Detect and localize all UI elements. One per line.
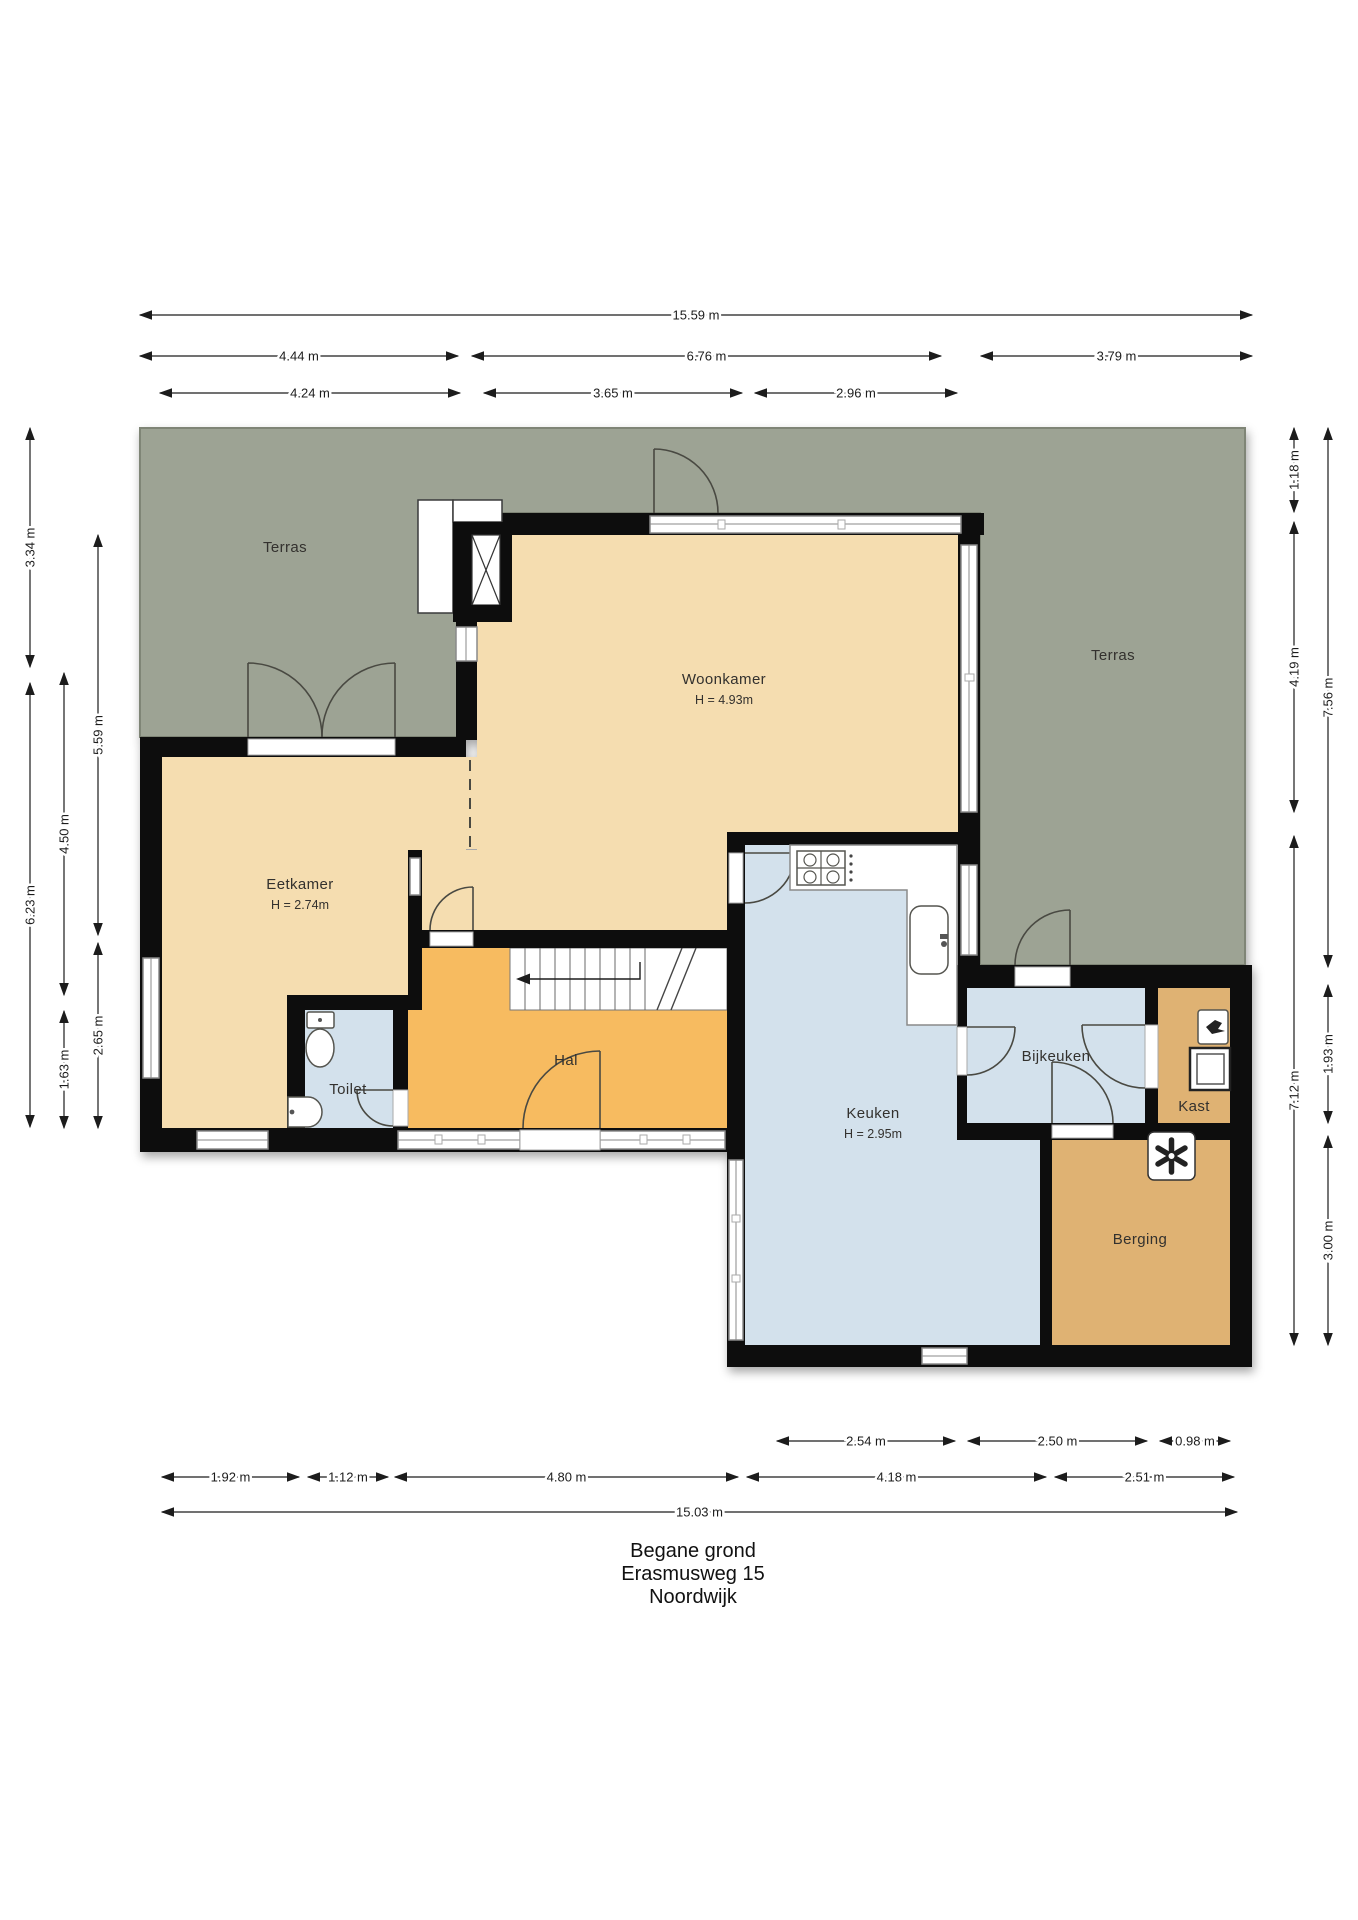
svg-text:0.98 m: 0.98 m [1175, 1434, 1215, 1449]
wc-icon [306, 1012, 334, 1067]
dim-3.34m: 3.34 m [23, 428, 38, 667]
room-label-berging: Berging [1113, 1231, 1168, 1248]
boiler-tap-icon [1198, 1010, 1228, 1044]
dim-2.51m: 2.51 m [1055, 1470, 1234, 1485]
svg-text:15.59 m: 15.59 m [673, 308, 720, 323]
svg-text:2.54 m: 2.54 m [846, 1434, 886, 1449]
svg-text:3.79 m: 3.79 m [1097, 349, 1137, 364]
dim-2.54m: 2.54 m [777, 1434, 955, 1449]
window-keuken-west [729, 1160, 743, 1340]
sink-icon [910, 906, 948, 974]
dim-3.00m: 3.00 m [1321, 1136, 1336, 1345]
window-keuken-south [922, 1348, 967, 1364]
dim-6.23m: 6.23 m [23, 683, 38, 1127]
window-eetkamer-hal-wall [410, 858, 420, 895]
dim-1.92m: 1.92 m [162, 1470, 299, 1485]
room-label-bijkeuken: Bijkeuken [1022, 1048, 1091, 1065]
title-line-street: Erasmusweg 15 [621, 1563, 764, 1586]
dim-15.03m: 15.03 m [162, 1505, 1237, 1520]
svg-text:7.12 m: 7.12 m [1287, 1071, 1302, 1111]
dim-1.18m: 1.18 m [1287, 428, 1302, 512]
stove-icon [797, 851, 853, 885]
dim-3.65m: 3.65 m [484, 386, 742, 401]
dim-2.50m: 2.50 m [968, 1434, 1147, 1449]
svg-text:4.80 m: 4.80 m [547, 1470, 587, 1485]
dim-7.56m: 7.56 m [1321, 428, 1336, 967]
svg-text:4.19 m: 4.19 m [1287, 647, 1302, 687]
svg-text:4.50 m: 4.50 m [57, 814, 72, 854]
dim-5.59m: 5.59 m [91, 535, 106, 935]
svg-text:3.00 m: 3.00 m [1321, 1221, 1336, 1261]
dim-6.76m: 6.76 m [472, 349, 941, 364]
dim-0.98m: 0.98 m [1160, 1434, 1230, 1449]
floorplan-drawing: 15.59 m4.44 m6.76 m3.79 m4.24 m3.65 m2.9… [0, 0, 1358, 1920]
svg-text:1.63 m: 1.63 m [57, 1050, 72, 1090]
svg-text:1.92 m: 1.92 m [211, 1470, 251, 1485]
room-label-terras-left: Terras [263, 539, 307, 556]
dim-4.24m: 4.24 m [160, 386, 460, 401]
window-eetkamer-south [197, 1131, 268, 1149]
title-line-city: Noordwijk [621, 1586, 764, 1609]
dim-4.44m: 4.44 m [140, 349, 458, 364]
window-woonkamer-east-1 [961, 545, 977, 812]
svg-text:7.56 m: 7.56 m [1321, 678, 1336, 718]
washer-icon [1190, 1048, 1230, 1090]
svg-text:4.44 m: 4.44 m [279, 349, 319, 364]
room-sublabel-eetkamer: H = 2.74m [271, 898, 329, 912]
washbasin-icon [288, 1097, 322, 1127]
svg-text:2.50 m: 2.50 m [1038, 1434, 1078, 1449]
dim-2.65m: 2.65 m [91, 943, 106, 1128]
dim-1.12m: 1.12 m [308, 1470, 388, 1485]
dim-3.79m: 3.79 m [981, 349, 1252, 364]
window-hal-south-2 [600, 1131, 725, 1149]
dim-1.63m: 1.63 m [57, 1011, 72, 1128]
svg-text:1.93 m: 1.93 m [1321, 1034, 1336, 1074]
room-label-terras-right: Terras [1091, 647, 1135, 664]
svg-text:1.18 m: 1.18 m [1287, 450, 1302, 490]
dim-4.80m: 4.80 m [395, 1470, 738, 1485]
svg-text:4.24 m: 4.24 m [290, 386, 330, 401]
window-woonkamer-north [650, 516, 961, 533]
svg-text:1.12 m: 1.12 m [328, 1470, 368, 1485]
svg-text:15.03 m: 15.03 m [676, 1505, 723, 1520]
room-label-toilet: Toilet [329, 1081, 367, 1098]
svg-text:2.65 m: 2.65 m [91, 1016, 106, 1056]
dim-4.19m: 4.19 m [1287, 522, 1302, 812]
room-sublabel-keuken: H = 2.95m [844, 1127, 902, 1141]
window-hal-south [398, 1131, 520, 1149]
svg-text:6.23 m: 6.23 m [23, 885, 38, 925]
room-label-woonkamer: Woonkamer [682, 671, 766, 688]
svg-text:2.96 m: 2.96 m [836, 386, 876, 401]
dim-2.96m: 2.96 m [755, 386, 957, 401]
floorplan-page: 15.59 m4.44 m6.76 m3.79 m4.24 m3.65 m2.9… [0, 0, 1358, 1920]
title-line-floor: Begane grond [621, 1540, 764, 1563]
dim-4.50m: 4.50 m [57, 673, 72, 995]
room-label-eetkamer: Eetkamer [266, 876, 333, 893]
room-label-hal: Hal [554, 1052, 578, 1069]
svg-text:3.34 m: 3.34 m [23, 528, 38, 568]
dim-7.12m: 7.12 m [1287, 836, 1302, 1345]
svg-text:5.59 m: 5.59 m [91, 715, 106, 755]
svg-text:6.76 m: 6.76 m [687, 349, 727, 364]
dim-4.18m: 4.18 m [747, 1470, 1046, 1485]
stairs [510, 948, 727, 1010]
room-label-keuken: Keuken [846, 1105, 899, 1122]
dim-15.59m: 15.59 m [140, 308, 1252, 323]
svg-text:2.51 m: 2.51 m [1125, 1470, 1165, 1485]
room-sublabel-woonkamer: H = 4.93m [695, 693, 753, 707]
plan-title: Begane grond Erasmusweg 15 Noordwijk [621, 1540, 764, 1609]
window-keuken-east [961, 865, 977, 955]
svg-text:4.18 m: 4.18 m [877, 1470, 917, 1485]
ventilation-fan-icon [1148, 1132, 1195, 1180]
svg-text:3.65 m: 3.65 m [593, 386, 633, 401]
dim-1.93m: 1.93 m [1321, 985, 1336, 1123]
room-label-kast: Kast [1178, 1098, 1210, 1115]
window-eetkamer-west [143, 958, 159, 1078]
